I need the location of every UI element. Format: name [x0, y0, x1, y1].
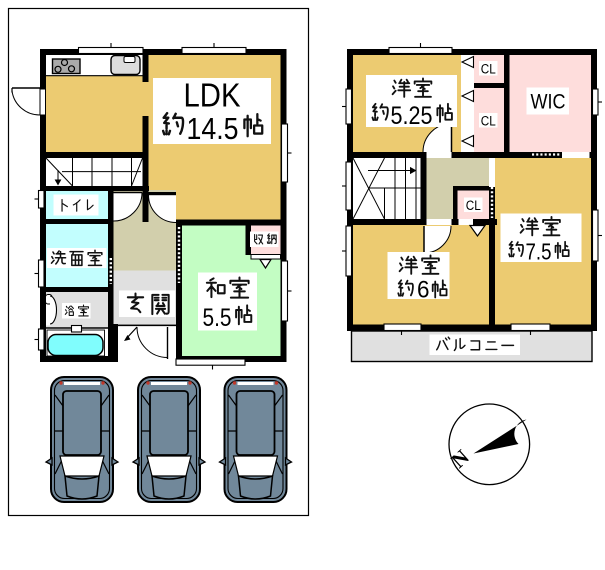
svg-text:14.5: 14.5: [187, 111, 239, 146]
svg-text:CL: CL: [466, 198, 481, 213]
svg-text:7.5: 7.5: [526, 239, 552, 265]
svg-text:5.25: 5.25: [391, 102, 433, 130]
svg-text:CL: CL: [481, 113, 496, 128]
svg-text:LDK: LDK: [184, 77, 241, 114]
svg-text:WIC: WIC: [531, 91, 566, 114]
svg-text:6: 6: [417, 277, 430, 304]
svg-text:CL: CL: [481, 61, 496, 76]
svg-text:5.5: 5.5: [203, 304, 232, 332]
